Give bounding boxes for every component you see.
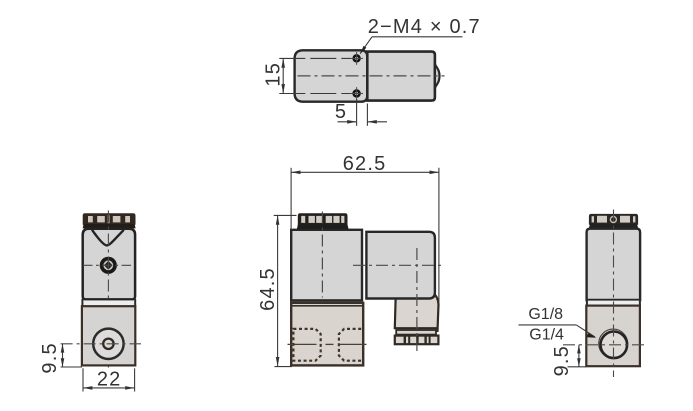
svg-text:9.5: 9.5 bbox=[551, 345, 573, 376]
svg-text:2−M4 × 0.7: 2−M4 × 0.7 bbox=[368, 16, 481, 38]
svg-text:62.5: 62.5 bbox=[343, 153, 387, 175]
svg-text:64.5: 64.5 bbox=[257, 267, 279, 311]
svg-text:9.5: 9.5 bbox=[39, 342, 61, 373]
svg-text:5: 5 bbox=[335, 101, 347, 123]
svg-text:15: 15 bbox=[262, 62, 284, 87]
svg-text:22: 22 bbox=[97, 369, 122, 391]
svg-text:G1/8: G1/8 bbox=[528, 306, 563, 323]
svg-text:G1/4: G1/4 bbox=[529, 327, 564, 344]
